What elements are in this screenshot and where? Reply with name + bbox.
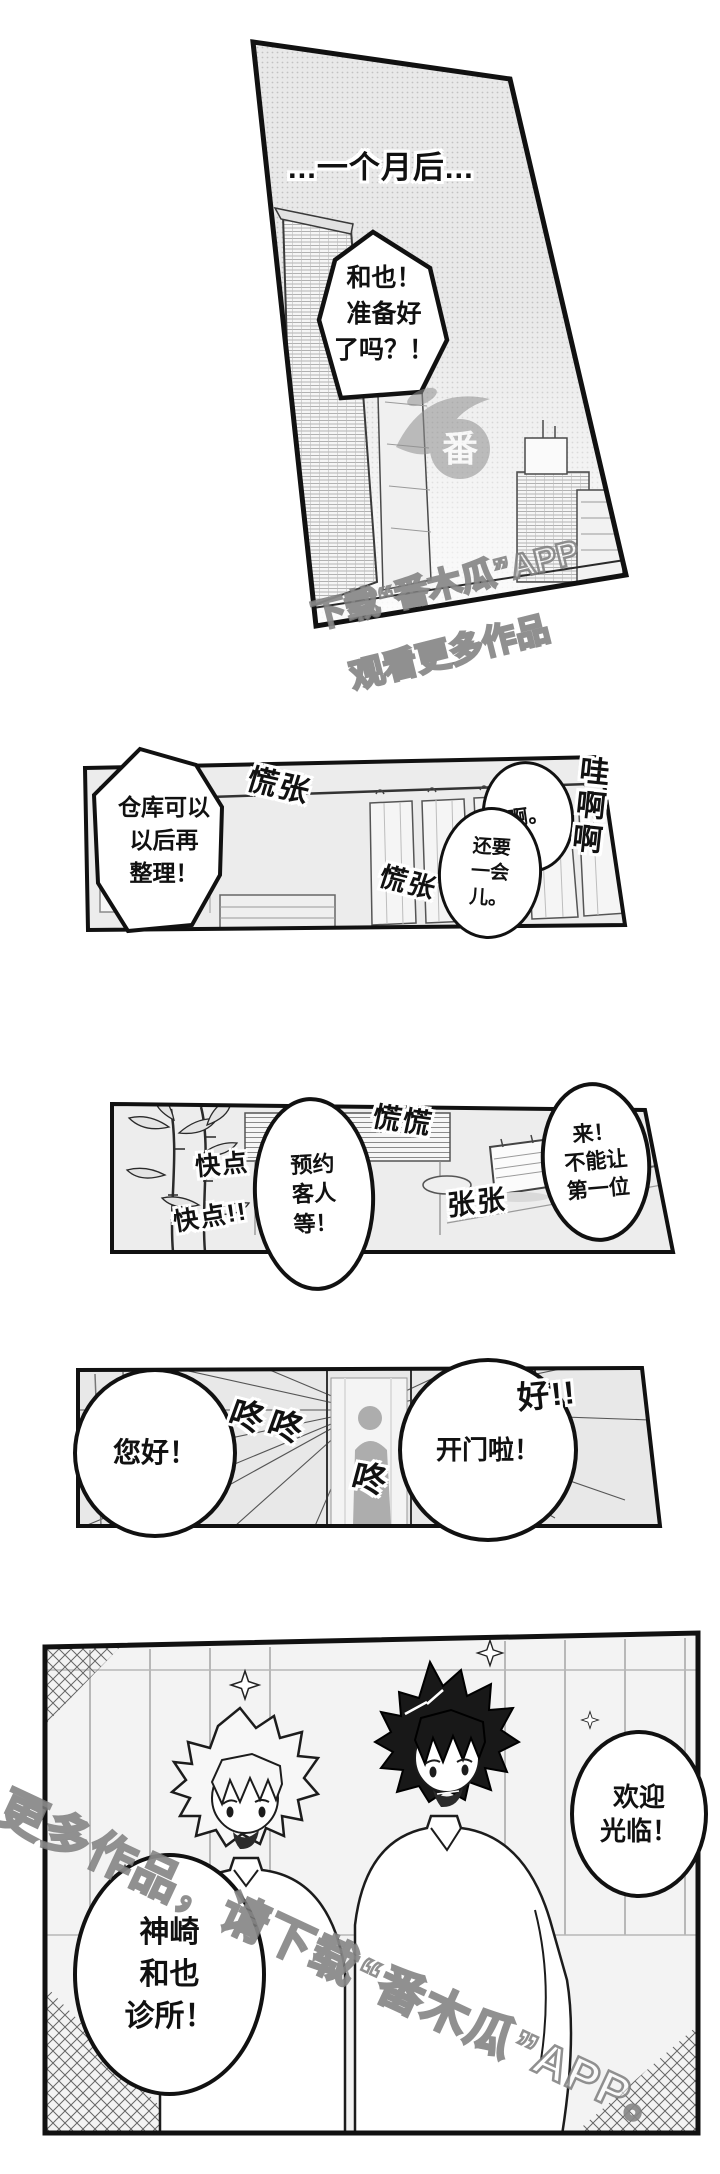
bubble-line: 了吗？！ — [325, 332, 443, 368]
bubble-line: 准备好 — [325, 296, 443, 332]
bubble-line: 儿。 — [468, 884, 508, 912]
sfx-hurry-top: 快点 — [194, 1143, 251, 1184]
bubble-welcome-text: 欢迎 光临！ — [600, 1780, 678, 1849]
speech-bubble-warehouse-text: 仓库可以 以后再 整理！ — [100, 791, 228, 890]
bubble-line: 欢迎 — [600, 1780, 678, 1814]
speech-bubble-hello: 您好！ — [73, 1368, 237, 1538]
bubble-line: 一会 — [470, 859, 510, 887]
bubble-wait-text: 还要 一会 儿。 — [468, 834, 511, 912]
bubble-line: 和也 — [125, 1954, 215, 1996]
bubble-line: 整理！ — [100, 857, 228, 890]
bubble-line: 以后再 — [100, 824, 228, 857]
bubble-line: 客人 — [291, 1178, 336, 1209]
bubble-open-door-text: 开门啦！ — [436, 1433, 540, 1467]
bubble-first-customer-text: 来！ 不能让 第一位 — [561, 1118, 631, 1206]
sfx-fluster: 慌慌 — [369, 1095, 437, 1143]
panel-4-door-scene: 您好！ 咚咚 咚 开门啦！ 好!! — [65, 1350, 675, 1540]
bubble-line: 第一位 — [566, 1173, 631, 1206]
caption-one-month-later: ...一个月后... — [288, 142, 474, 187]
sfx-rush: 张张 — [446, 1177, 508, 1224]
papaya-logo-icon: 番 — [388, 375, 503, 490]
bubble-hello-text: 您好！ — [113, 1435, 197, 1472]
manga-page: ...一个月后... 和也！ 准备好 了吗？！ 番 下载“番木瓜”APP 观看更… — [0, 0, 720, 2174]
bubble-line: 预约 — [290, 1149, 335, 1180]
bubble-line: 还要 — [472, 834, 512, 862]
bubble-line: 仓库可以 — [100, 791, 228, 824]
bubble-appointment-text: 预约 客人 等！ — [290, 1149, 339, 1238]
panel-1-city-scene: ...一个月后... 和也！ 准备好 了吗？！ — [225, 20, 655, 640]
sfx-ok: 好!! — [515, 1367, 579, 1419]
panel-3-reception-scene: 快点 快点!! 慌慌 张张 预约 客人 等！ 来！ 不能让 第一位 — [95, 1085, 695, 1275]
panel-2-warehouse-scene: 仓库可以 以后再 整理！ 慌张 慌张 啊。 还要 一会 儿。 哇啊啊 — [70, 745, 645, 945]
papaya-logo-char: 番 — [442, 428, 478, 469]
speech-bubble-ready-text: 和也！ 准备好 了吗？！ — [325, 260, 443, 368]
bubble-line: 和也！ — [325, 260, 443, 296]
bubble-line: 等！ — [293, 1207, 338, 1238]
bubble-line: 光临！ — [600, 1814, 678, 1848]
speech-bubble-welcome: 欢迎 光临！ — [570, 1730, 708, 1898]
bubble-line: 诊所！ — [125, 1996, 215, 2038]
